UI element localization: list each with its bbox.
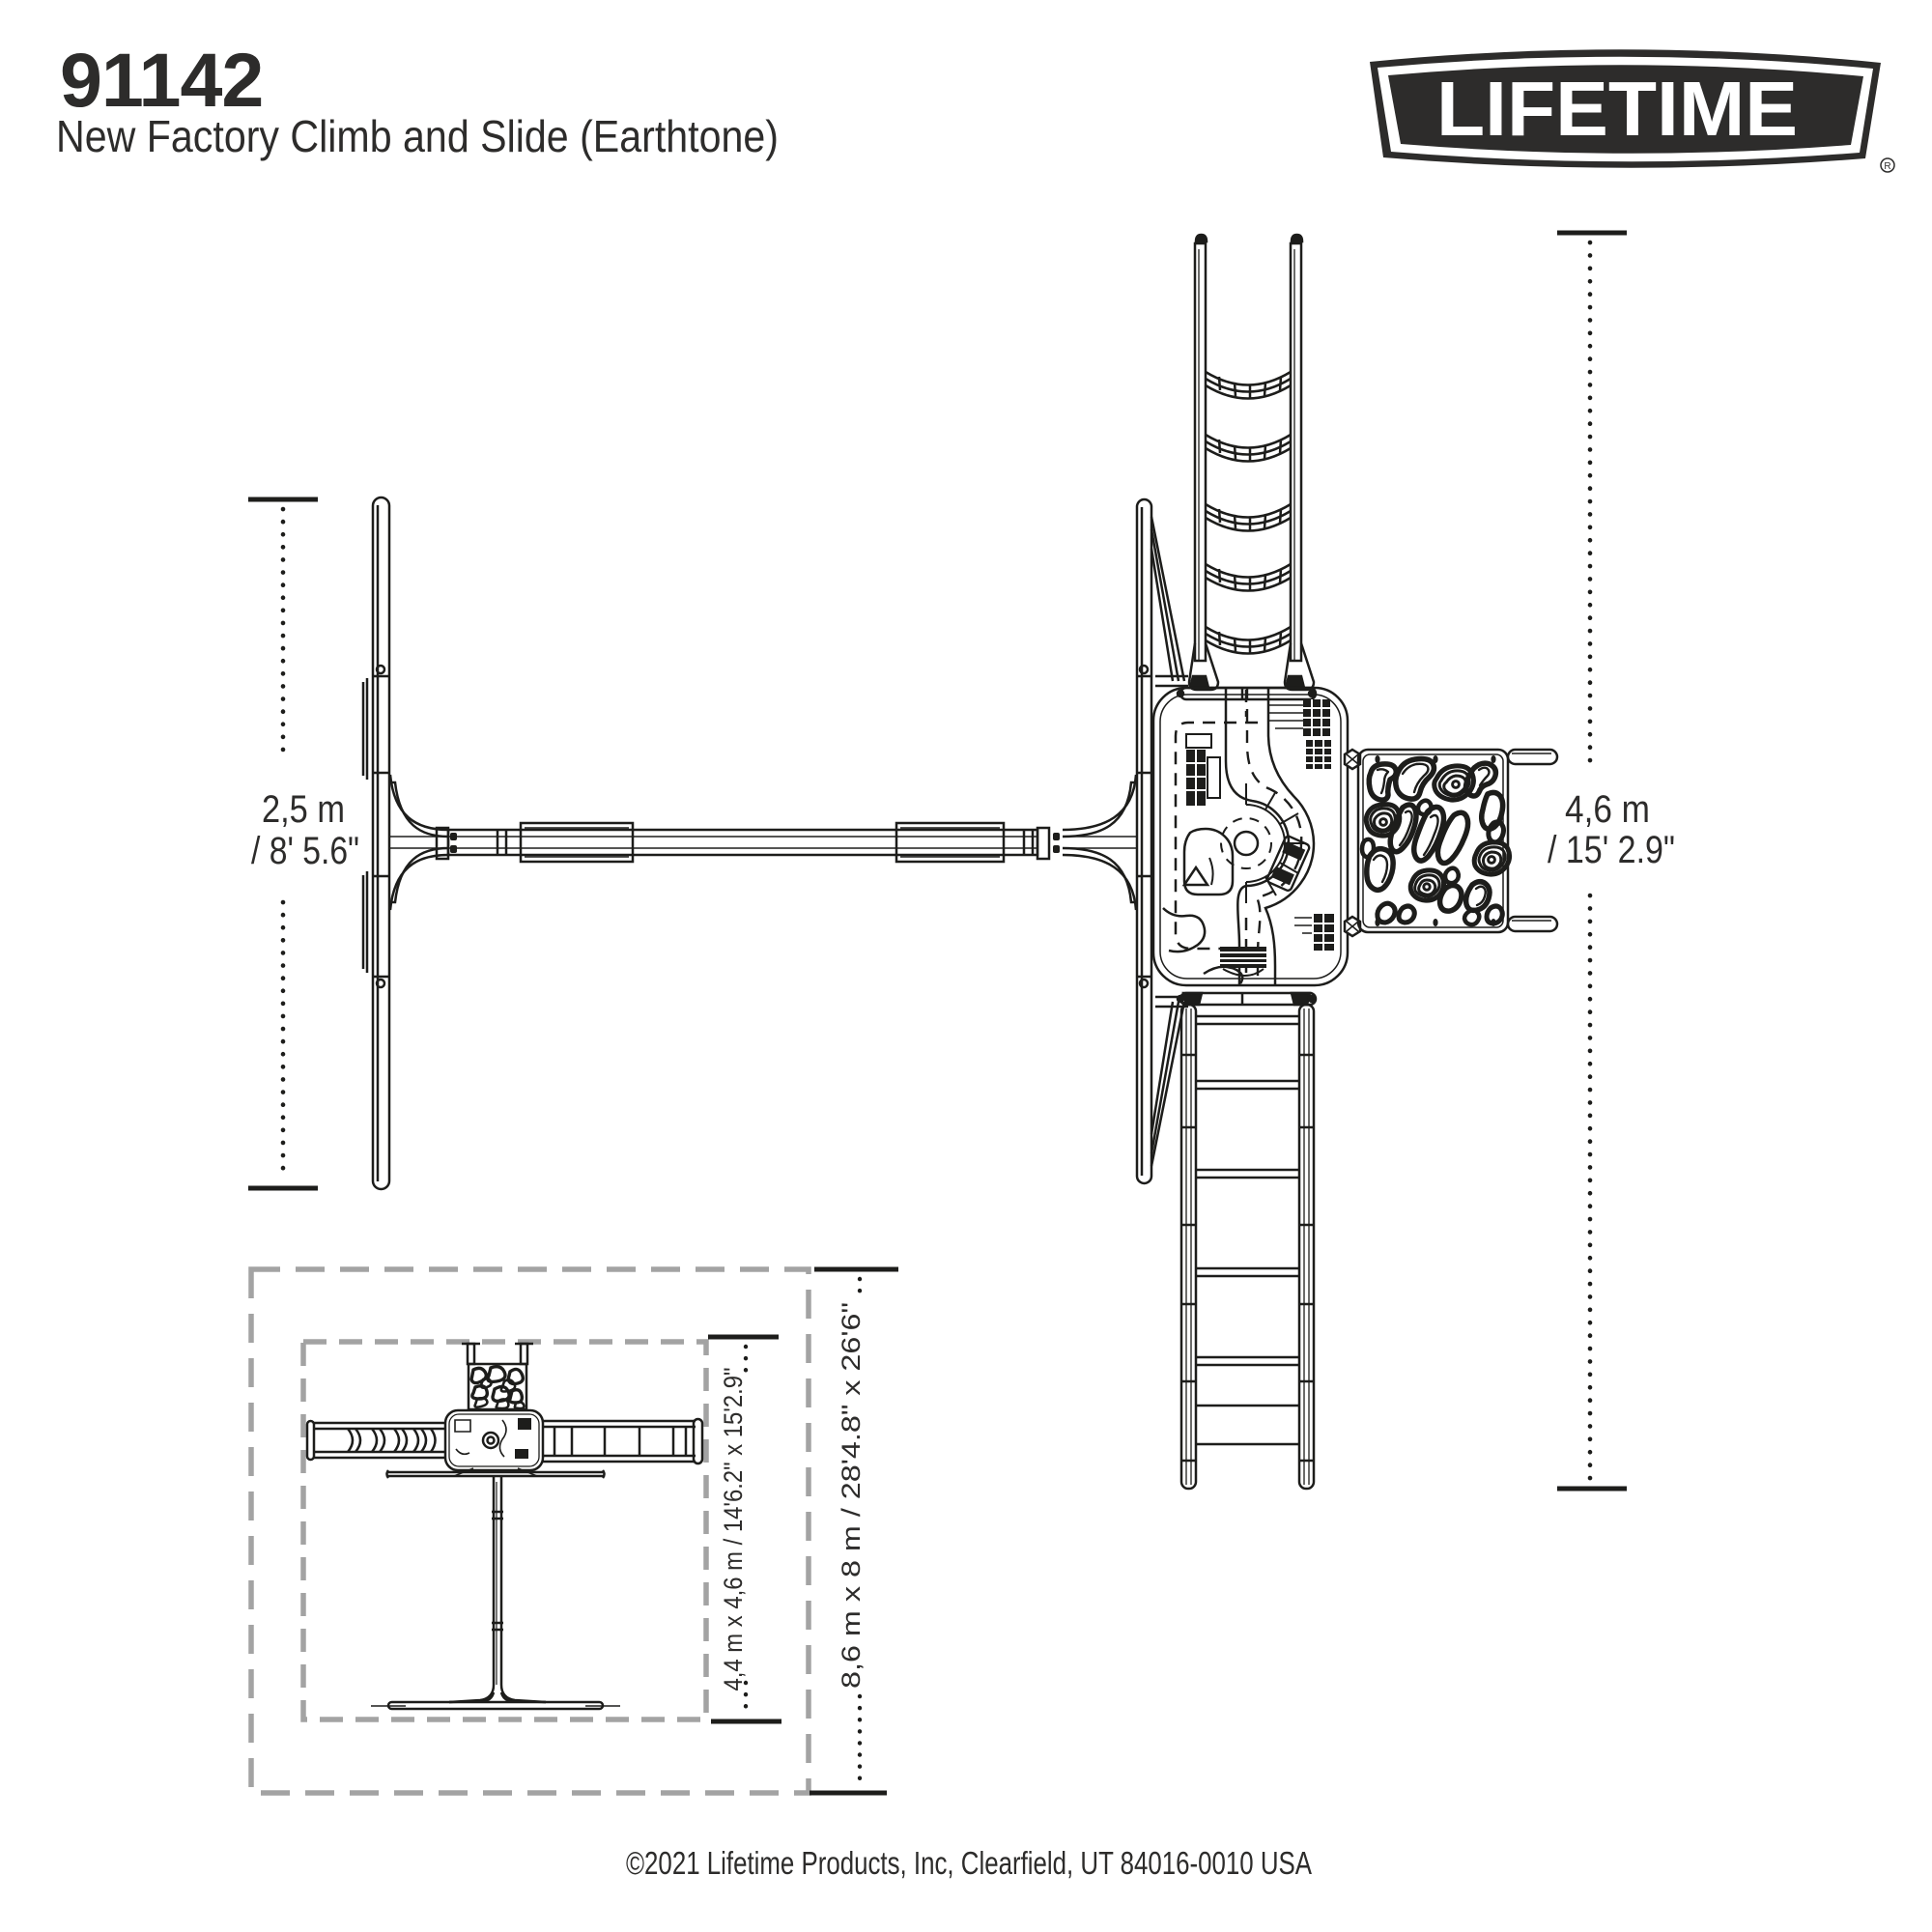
svg-text:/ 15' 2.9": / 15' 2.9" bbox=[1548, 829, 1675, 871]
svg-text:R: R bbox=[1884, 161, 1890, 172]
svg-text:New Factory Climb and Slide (E: New Factory Climb and Slide (Earthtone) bbox=[56, 111, 779, 161]
svg-text:91142: 91142 bbox=[60, 37, 263, 123]
svg-text:/ 8' 5.6": / 8' 5.6" bbox=[251, 830, 359, 872]
svg-text:8,6 m x 8 m / 28'4.8" x 26'6": 8,6 m x 8 m / 28'4.8" x 26'6" bbox=[837, 1302, 866, 1689]
svg-text:2,5 m: 2,5 m bbox=[262, 788, 345, 831]
svg-text:4,4 m x 4,6 m / 14'6.2" x 15'2: 4,4 m x 4,6 m / 14'6.2" x 15'2.9" bbox=[719, 1368, 748, 1691]
svg-text:4,6 m: 4,6 m bbox=[1565, 788, 1650, 831]
svg-text:LIFETIME: LIFETIME bbox=[1436, 66, 1798, 152]
svg-text:©2021 Lifetime Products, Inc,: ©2021 Lifetime Products, Inc, Clearfield… bbox=[626, 1845, 1312, 1881]
